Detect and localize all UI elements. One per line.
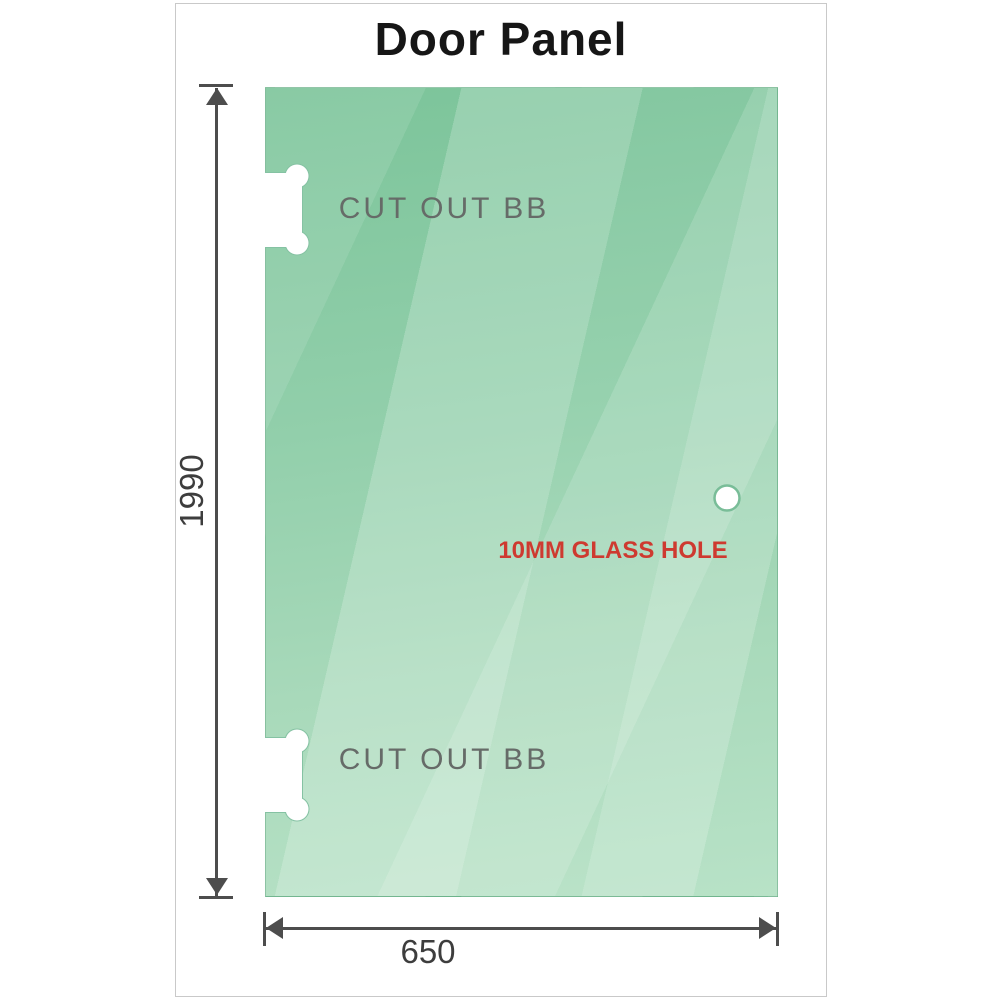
hinge-cutout-top xyxy=(265,165,309,255)
width-dim-value: 650 xyxy=(400,933,455,971)
page-title: Door Panel xyxy=(176,12,826,66)
cutout-top-label: CUT OUT BB xyxy=(339,192,550,226)
height-dim-arrow-up-icon xyxy=(206,88,228,105)
height-dim-line xyxy=(215,88,218,896)
width-dim-arrow-right-icon xyxy=(759,917,776,939)
height-dim-value: 1990 xyxy=(173,454,211,527)
glass-hole xyxy=(715,486,740,511)
height-dim-arrow-down-icon xyxy=(206,878,228,895)
door-panel-glass: CUT OUT BB CUT OUT BB 10MM GLASS HOLE xyxy=(265,87,778,897)
glass-hole-label: 10MM GLASS HOLE xyxy=(498,537,727,565)
width-dim-right-cap xyxy=(776,912,779,946)
height-dim-bottom-cap xyxy=(199,896,233,899)
hinge-cutout-bottom xyxy=(265,730,309,821)
drawing-frame: Door Panel xyxy=(175,3,827,997)
width-dim-arrow-left-icon xyxy=(266,917,283,939)
cutout-bottom-label: CUT OUT BB xyxy=(339,743,550,777)
door-panel-diagram: Door Panel xyxy=(0,0,1000,1000)
height-dim-top-cap xyxy=(199,84,233,87)
width-dim-line xyxy=(266,927,776,930)
